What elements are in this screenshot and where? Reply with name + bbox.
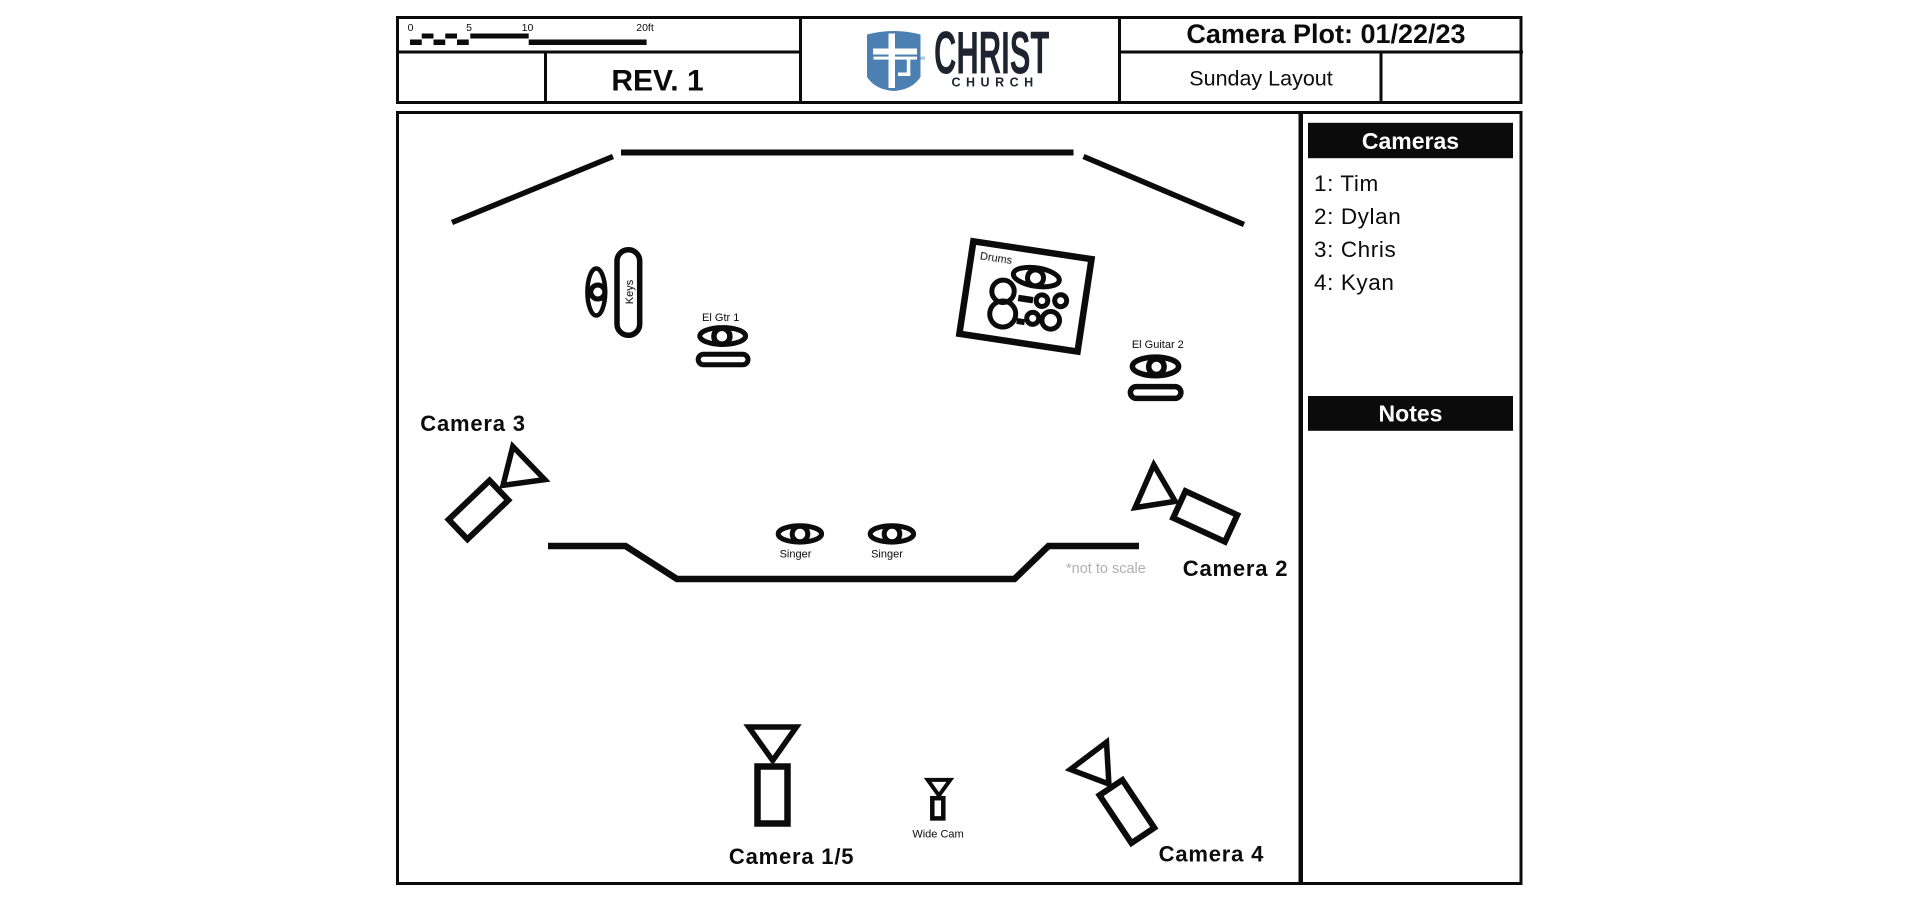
svg-text:Singer: Singer (780, 549, 812, 561)
svg-text:Camera 2: Camera 2 (1183, 556, 1288, 581)
svg-text:5: 5 (466, 22, 472, 34)
svg-text:Camera Plot: 01/22/23: Camera Plot: 01/22/23 (1186, 19, 1465, 49)
svg-text:Singer: Singer (871, 549, 903, 561)
svg-text:Keys: Keys (624, 279, 636, 304)
svg-text:0: 0 (408, 22, 414, 34)
svg-text:El Gtr 1: El Gtr 1 (702, 312, 739, 324)
svg-text:4: Kyan: 4: Kyan (1314, 270, 1395, 295)
svg-text:10: 10 (522, 22, 534, 34)
svg-text:El Guitar 2: El Guitar 2 (1132, 339, 1184, 351)
svg-text:Camera 3: Camera 3 (420, 411, 525, 436)
svg-text:20ft: 20ft (636, 22, 654, 34)
svg-text:Notes: Notes (1379, 401, 1443, 427)
svg-text:2: Dylan: 2: Dylan (1314, 204, 1401, 229)
svg-text:Cameras: Cameras (1362, 128, 1459, 154)
svg-text:Wide Cam: Wide Cam (912, 829, 963, 841)
svg-text:1: Tim: 1: Tim (1314, 171, 1379, 196)
svg-text:CHURCH: CHURCH (952, 76, 1039, 90)
svg-text:Drums: Drums (979, 250, 1013, 267)
svg-text:Camera 1/5: Camera 1/5 (729, 844, 854, 869)
svg-text:REV. 1: REV. 1 (611, 65, 703, 98)
svg-text:Camera 4: Camera 4 (1159, 842, 1264, 867)
svg-text:Sunday Layout: Sunday Layout (1189, 67, 1332, 91)
svg-text:3: Chris: 3: Chris (1314, 237, 1396, 262)
svg-text:*not to scale: *not to scale (1066, 561, 1146, 577)
